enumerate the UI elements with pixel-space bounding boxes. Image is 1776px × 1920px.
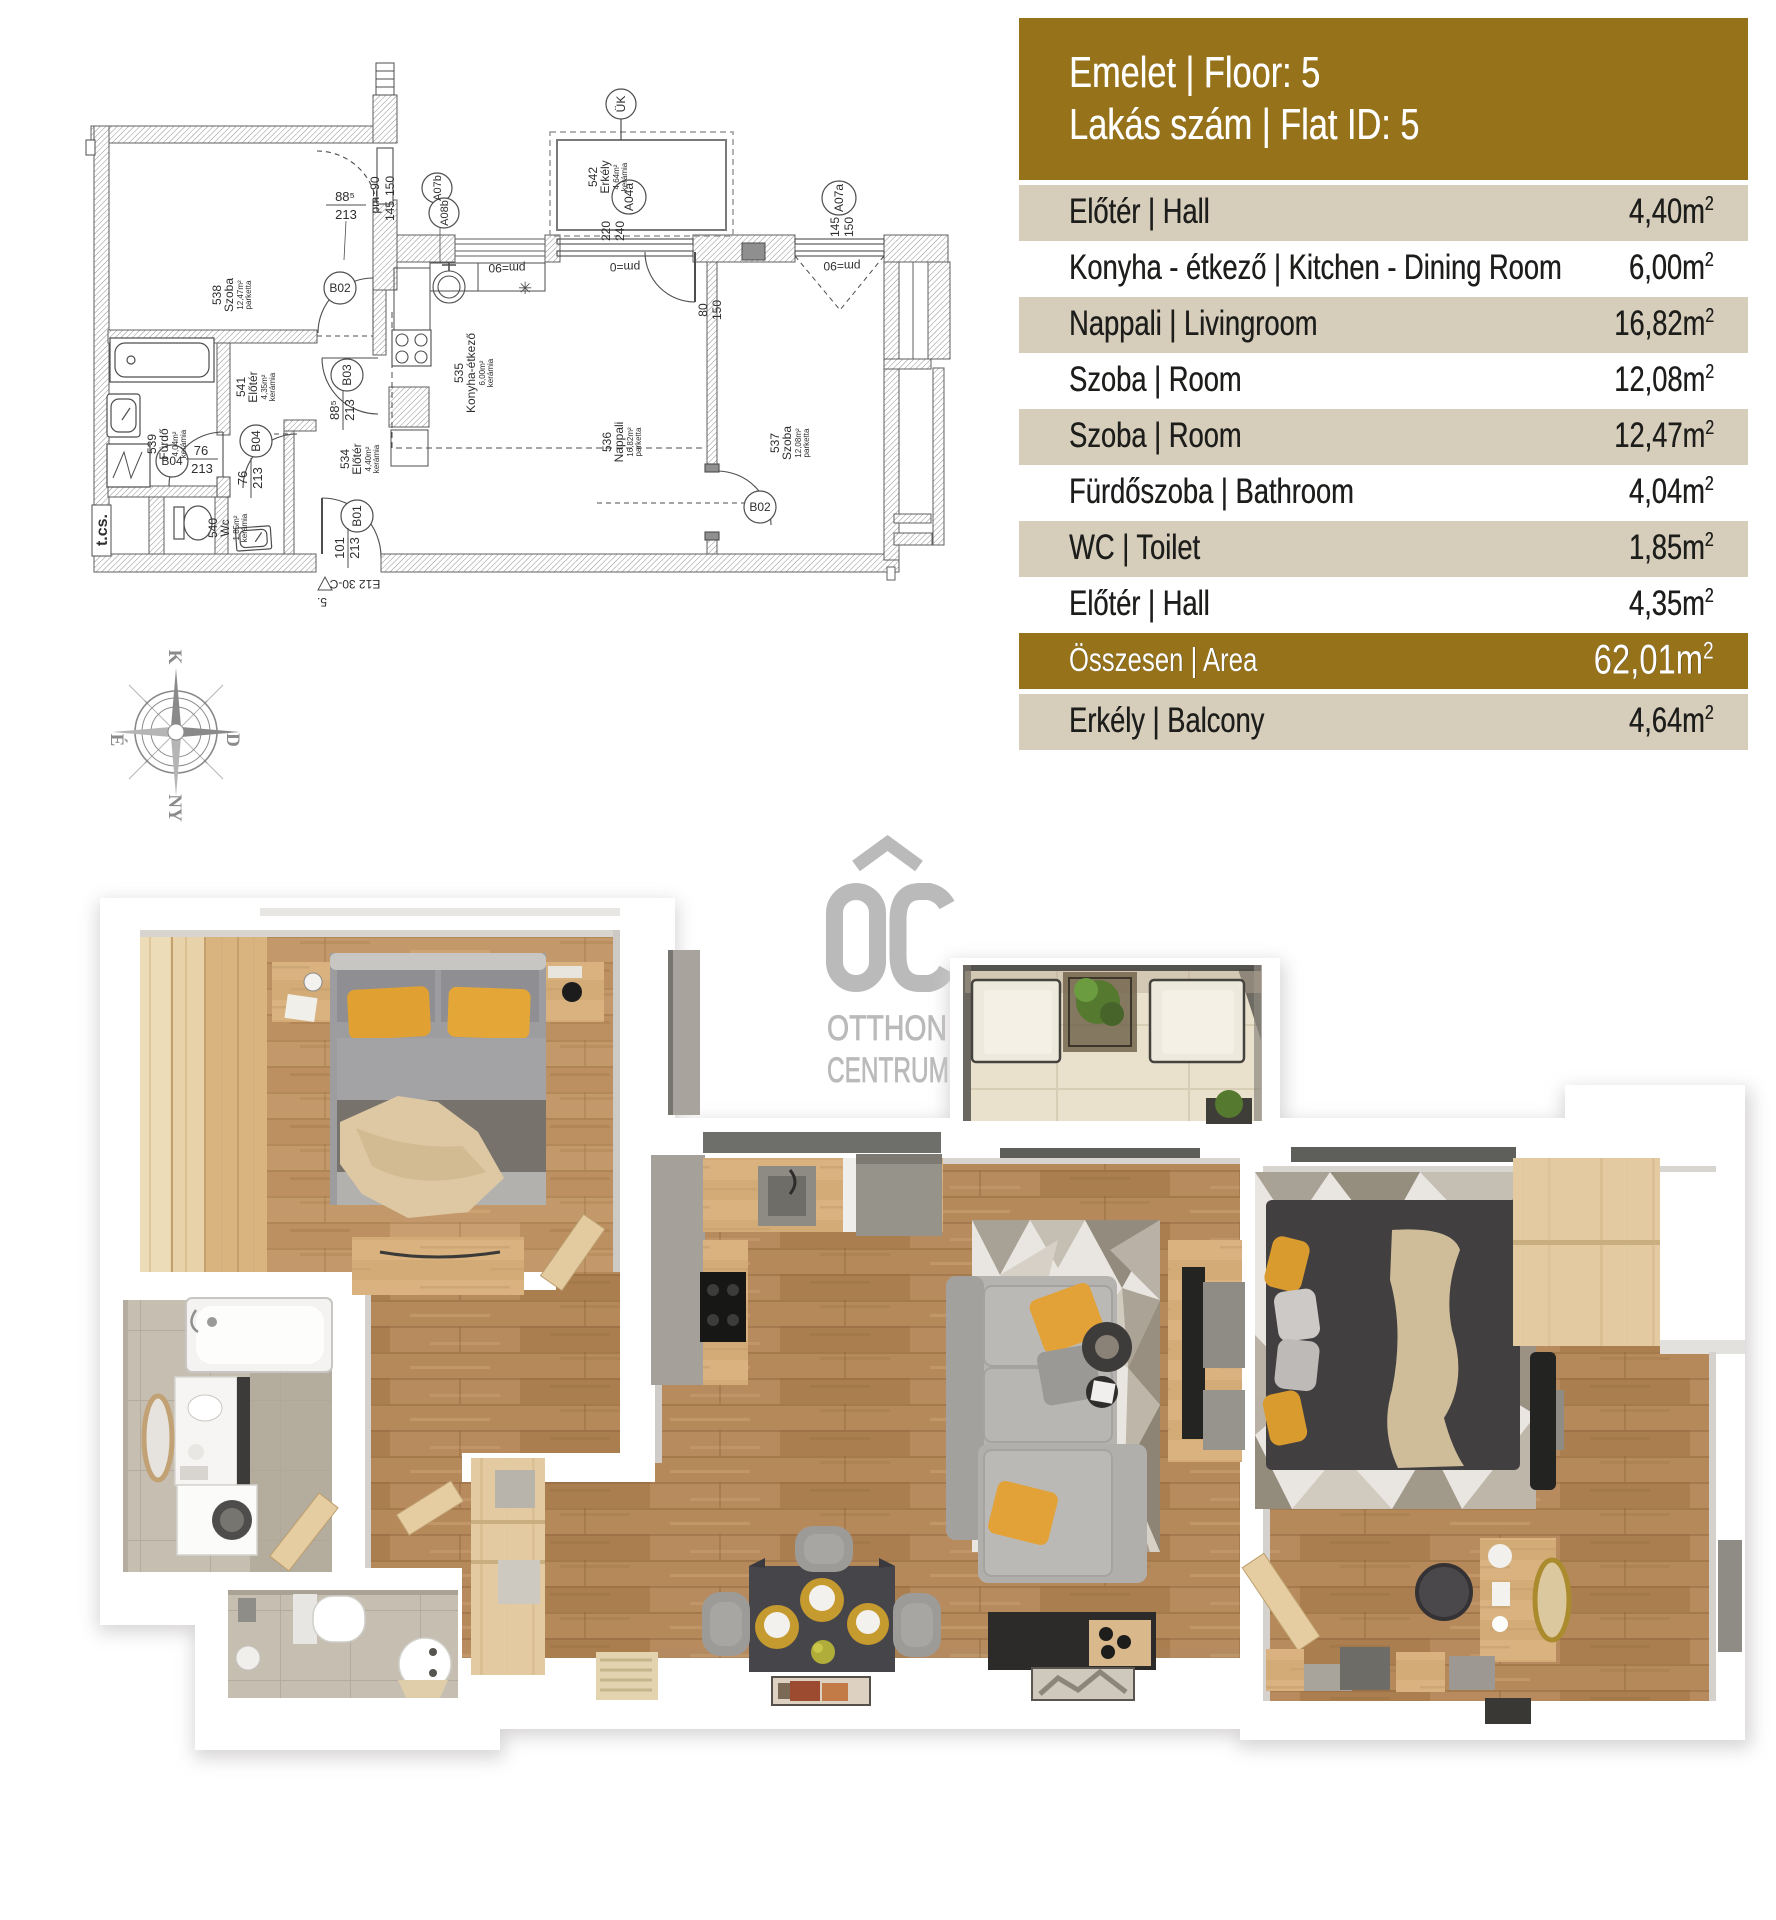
svg-text:CENTRUM: CENTRUM — [827, 1051, 949, 1090]
svg-text:OTTHON: OTTHON — [827, 1009, 947, 1048]
